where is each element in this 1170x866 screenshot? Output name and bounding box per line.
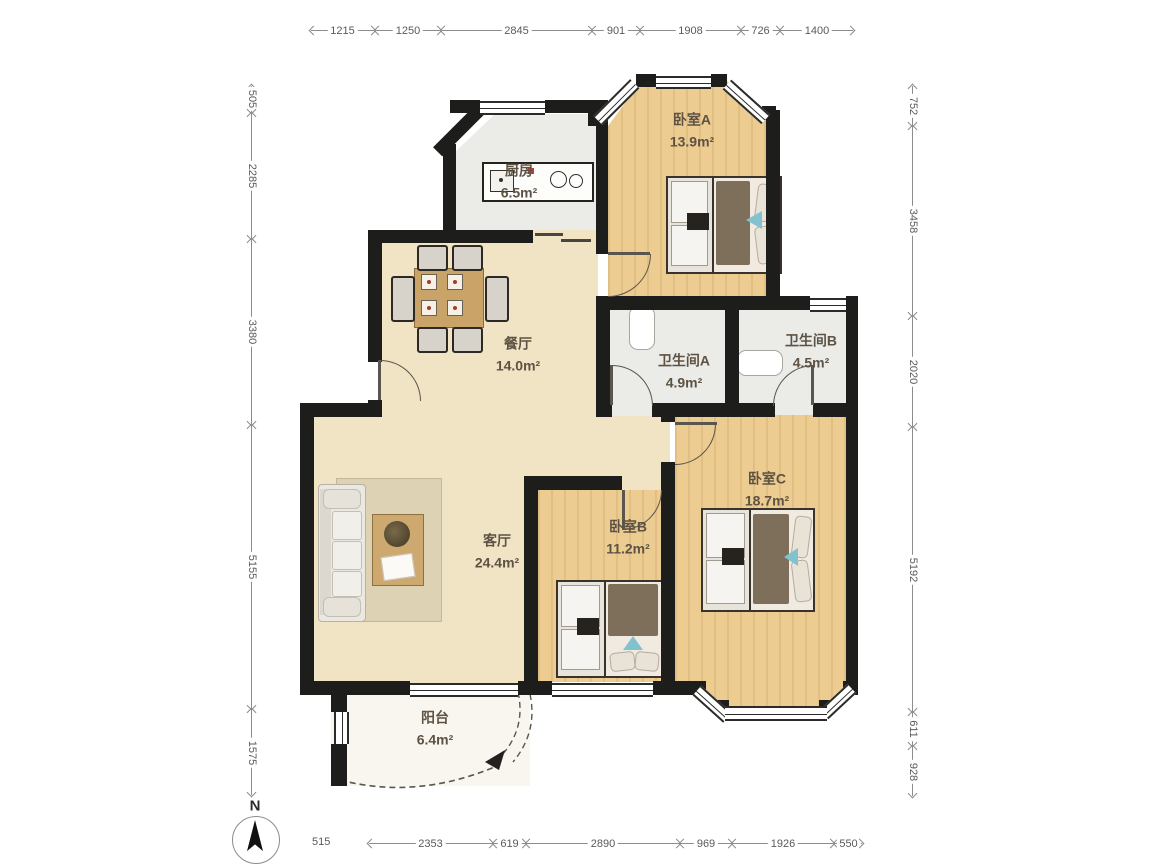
- wall-segment: [636, 74, 656, 87]
- room-area: 18.7m²: [745, 490, 789, 512]
- wall-segment: [596, 296, 780, 310]
- room-area: 4.9m²: [658, 372, 710, 394]
- dim-value: 969: [694, 838, 718, 850]
- stove-burner: [550, 171, 567, 188]
- tv: [687, 213, 709, 230]
- bed-a-wardrobe: [666, 176, 716, 274]
- dim-value: 901: [604, 25, 628, 37]
- tv: [577, 618, 599, 635]
- kitchen-counter: [482, 162, 594, 202]
- dining-chair: [417, 245, 448, 271]
- dimension-row-bottom: 2353 619 2890 969 1926 550: [368, 835, 863, 851]
- room-area: 24.4m²: [475, 552, 519, 574]
- wall-segment: [813, 403, 846, 417]
- wall-segment: [331, 744, 347, 786]
- dim-value: 2890: [588, 838, 618, 850]
- dim-value: 2353: [415, 838, 445, 850]
- wall-segment: [711, 74, 727, 87]
- dimension-col-right: 752 3458 2020 5192 611 928: [904, 85, 920, 797]
- room-name: 厨房: [501, 160, 538, 182]
- bathroom-b-window: [810, 298, 846, 312]
- dim-segment: 2890: [526, 835, 680, 851]
- dim-offset-label: 515: [312, 836, 330, 848]
- room-name: 卧室A: [670, 109, 714, 131]
- dim-value: 1250: [393, 25, 423, 37]
- room-name: 卧室C: [745, 468, 789, 490]
- dim-segment: 726: [741, 22, 780, 38]
- dim-value: 1926: [768, 838, 798, 850]
- wall-segment: [518, 681, 552, 695]
- dim-segment: 611: [904, 712, 920, 746]
- north-label: N: [250, 798, 261, 815]
- dining-chair: [485, 276, 509, 322]
- room-name: 卧室B: [606, 516, 650, 538]
- dim-value: 1575: [246, 737, 258, 767]
- wall-segment: [766, 110, 780, 310]
- room-area: 6.4m²: [417, 729, 454, 751]
- sofa: [318, 484, 366, 622]
- wall-segment: [661, 462, 675, 690]
- dimension-col-left: 505 2285 3380 5155 1575: [243, 85, 259, 796]
- dim-value: 619: [497, 838, 521, 850]
- balcony-side-window: [334, 712, 349, 744]
- dim-segment: 550: [834, 835, 863, 851]
- dim-value: 2285: [246, 161, 258, 191]
- bed-b: [604, 580, 666, 678]
- dim-value: 2020: [907, 356, 919, 386]
- room-area: 4.5m²: [785, 352, 837, 374]
- bedroom-b-label: 卧室B 11.2m²: [606, 516, 650, 559]
- bathroom-b-label: 卫生间B 4.5m²: [785, 330, 837, 373]
- dim-segment: 2845: [441, 22, 592, 38]
- wall-segment: [596, 403, 612, 417]
- dim-segment: 5155: [243, 425, 259, 709]
- bedroom-c-bay-window: [725, 706, 827, 721]
- dim-segment: 619: [493, 835, 526, 851]
- bedroom-a-label: 卧室A 13.9m²: [670, 109, 714, 152]
- wall-segment: [443, 144, 456, 243]
- bathroom-a-label: 卫生间A 4.9m²: [658, 350, 710, 393]
- bedroom-a-bay-window: [656, 76, 711, 89]
- living-label: 客厅 24.4m²: [475, 530, 519, 573]
- dim-value: 2845: [501, 25, 531, 37]
- room-area: 13.9m²: [670, 131, 714, 153]
- kitchen-label: 厨房 6.5m²: [501, 160, 538, 203]
- dining-chair: [452, 245, 483, 271]
- dim-segment: 1400: [780, 22, 854, 38]
- dim-segment: 1575: [243, 709, 259, 796]
- dining-table: [414, 268, 484, 328]
- sliding-door: [561, 239, 591, 242]
- wall-segment: [331, 688, 347, 712]
- kitchen-window: [480, 101, 545, 115]
- wall-segment: [300, 681, 410, 695]
- dim-value: 5155: [246, 552, 258, 582]
- dining-chair: [452, 327, 483, 353]
- room-area: 6.5m²: [501, 182, 538, 204]
- dim-segment: 2285: [243, 113, 259, 239]
- room-name: 卫生间A: [658, 350, 710, 372]
- dining-label: 餐厅 14.0m²: [496, 333, 540, 376]
- wall-segment: [443, 230, 533, 243]
- dim-value: 752: [907, 93, 919, 117]
- wall-segment: [368, 236, 382, 362]
- dim-segment: 3380: [243, 239, 259, 425]
- wall-segment: [661, 417, 675, 422]
- dim-value: 3458: [907, 206, 919, 236]
- dim-segment: 969: [680, 835, 732, 851]
- wall-segment: [846, 296, 858, 695]
- dim-segment: 5192: [904, 427, 920, 712]
- room-name: 客厅: [475, 530, 519, 552]
- dining-chair: [391, 276, 415, 322]
- wall-segment: [300, 403, 314, 695]
- plant: [384, 521, 410, 547]
- bedroom-c-label: 卧室C 18.7m²: [745, 468, 789, 511]
- dim-segment: 1926: [732, 835, 834, 851]
- floor-plan: 1215 1250 2845 901 1908 726 1400 505 228…: [0, 0, 1170, 866]
- table-paper: [380, 553, 415, 581]
- dim-value: 3380: [246, 317, 258, 347]
- dim-value: 505: [246, 87, 258, 111]
- sliding-door: [535, 233, 563, 236]
- wall-segment: [596, 108, 608, 254]
- room-name: 餐厅: [496, 333, 540, 355]
- dim-segment: 2020: [904, 316, 920, 427]
- bed-c-wardrobe: [701, 508, 753, 612]
- dim-value: 928: [907, 759, 919, 783]
- dim-segment: 752: [904, 85, 920, 126]
- wall-segment: [725, 296, 739, 417]
- balcony-door-window: [410, 683, 518, 697]
- wall-segment: [596, 310, 610, 417]
- bedroom-b-window: [552, 683, 653, 697]
- bed-c: [749, 508, 815, 612]
- coffee-table: [372, 514, 424, 586]
- wall-segment: [524, 476, 538, 681]
- bed-b-wardrobe: [556, 580, 608, 678]
- dim-segment: 901: [592, 22, 640, 38]
- dim-value: 611: [907, 717, 919, 741]
- room-area: 14.0m²: [496, 355, 540, 377]
- dim-segment: 2353: [368, 835, 493, 851]
- toilet: [629, 306, 655, 350]
- dim-segment: 3458: [904, 126, 920, 316]
- dim-value: 1215: [327, 25, 357, 37]
- room-area: 11.2m²: [606, 538, 650, 560]
- washbasin: [737, 350, 783, 376]
- dimension-row-top: 1215 1250 2845 901 1908 726 1400: [310, 22, 854, 38]
- wall-segment: [524, 476, 622, 490]
- dim-value: 726: [748, 25, 772, 37]
- room-name: 阳台: [417, 707, 454, 729]
- tv: [722, 548, 744, 565]
- stove-burner: [569, 174, 583, 188]
- dim-segment: 505: [243, 85, 259, 113]
- dim-value: 1908: [675, 25, 705, 37]
- room-name: 卫生间B: [785, 330, 837, 352]
- dim-segment: 1215: [310, 22, 375, 38]
- dim-segment: 1908: [640, 22, 741, 38]
- balcony-label: 阳台 6.4m²: [417, 707, 454, 750]
- dim-value: 550: [836, 838, 860, 850]
- dining-chair: [417, 327, 448, 353]
- dim-segment: 928: [904, 746, 920, 797]
- dim-value: 5192: [907, 554, 919, 584]
- dim-value: 1400: [802, 25, 832, 37]
- dim-segment: 1250: [375, 22, 441, 38]
- wall-segment: [652, 403, 775, 417]
